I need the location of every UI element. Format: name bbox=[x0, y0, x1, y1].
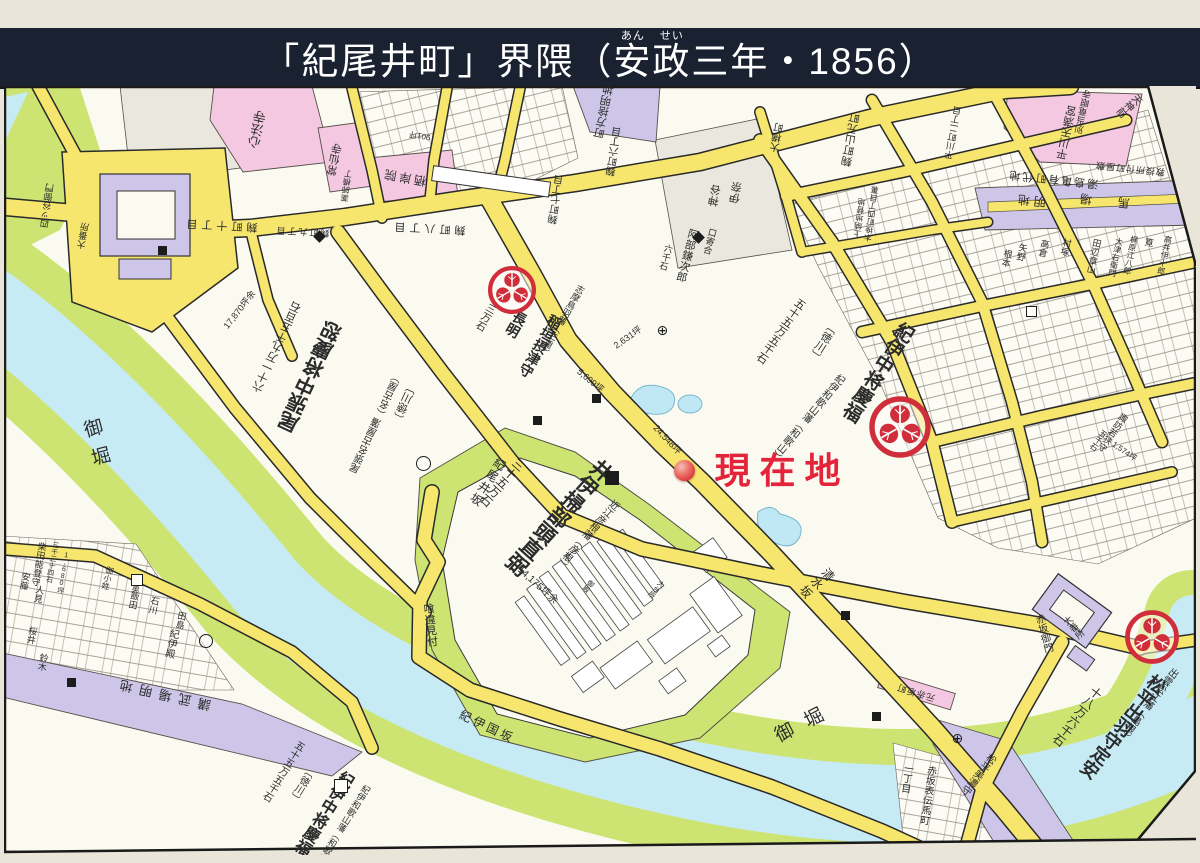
ruby-base-an: 安 bbox=[613, 41, 652, 82]
map-canvas bbox=[4, 86, 1196, 855]
title-ruby-sei: 政せい bbox=[652, 30, 691, 85]
title-band: 「紀尾井町」界隈（安あん政せい三年・1856） bbox=[0, 28, 1200, 89]
ruby-furigana-an: あん bbox=[613, 30, 652, 42]
edo-map-svg bbox=[4, 86, 1196, 855]
title-ruby-an: 安あん bbox=[613, 30, 652, 85]
map-sign-photo: 「紀尾井町」界隈（安あん政せい三年・1856） bbox=[0, 0, 1200, 863]
title-post: 三年・1856） bbox=[691, 31, 937, 85]
page-title: 「紀尾井町」界隈（安あん政せい三年・1856） bbox=[262, 30, 937, 85]
ruby-base-sei: 政 bbox=[652, 41, 691, 82]
title-pre: 「紀尾井町」界隈（ bbox=[262, 31, 613, 85]
ruby-furigana-sei: せい bbox=[652, 30, 691, 42]
